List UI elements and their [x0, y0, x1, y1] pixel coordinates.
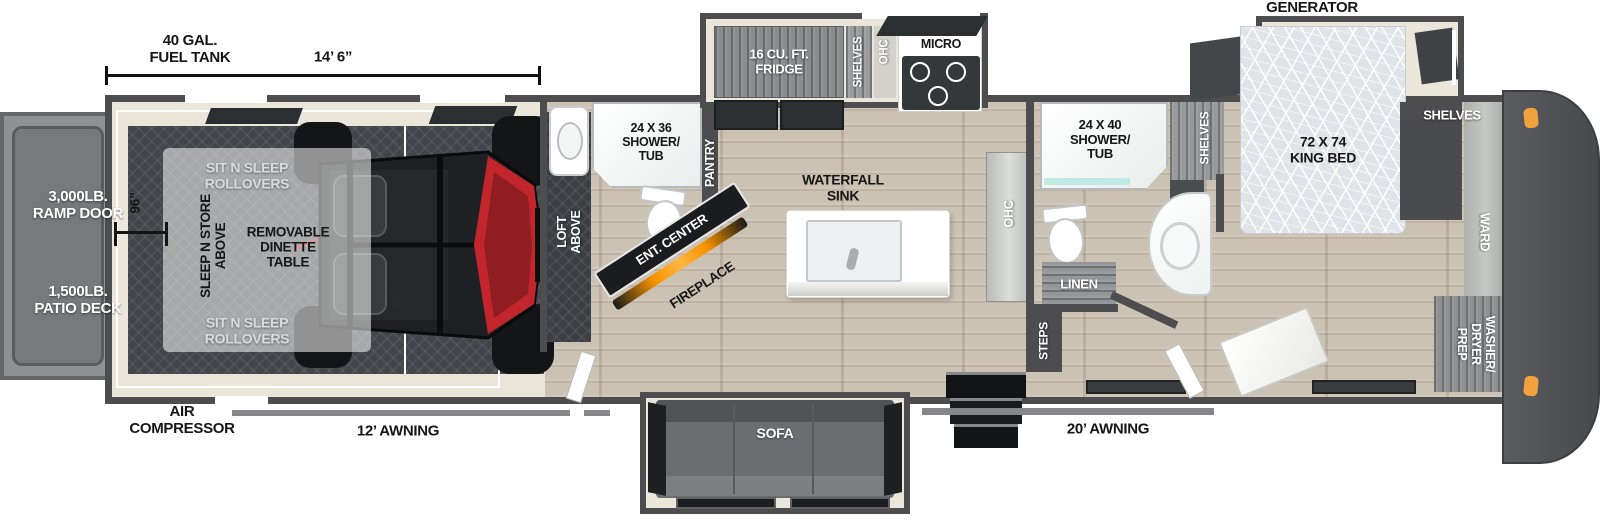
island-edge [788, 282, 948, 296]
microwave-label: MICRO [921, 37, 961, 51]
loft-above-label: LOFT ABOVE [555, 211, 583, 254]
sleep-n-store-label: SLEEP N STORE ABOVE [198, 194, 228, 298]
awning-12-bar [232, 410, 570, 416]
awning-12-label: 12’ AWNING [357, 424, 439, 441]
vanity-sink [1160, 222, 1200, 270]
sofa-mat-1 [676, 497, 776, 509]
sofa-armrest-left [648, 402, 666, 496]
entry-step-3 [954, 424, 1018, 448]
waterfall-sink-label: WATERFALL SINK [802, 172, 884, 203]
garage-width-label: 96” [127, 193, 142, 214]
king-bed-label: 72 X 74 KING BED [1290, 134, 1356, 165]
steps-label: STEPS [1037, 322, 1050, 360]
sofa-back [656, 400, 894, 422]
patio-deck-label: 1,500LB. PATIO DECK [34, 284, 121, 318]
ramp-door-panel [12, 126, 104, 366]
sit-n-sleep-bottom-label: SIT N SLEEP ROLLOVERS [205, 315, 289, 346]
half-bath-sink [557, 122, 583, 160]
awning-20-label: 20’ AWNING [1067, 422, 1149, 439]
sofa-cushion-line-1 [733, 404, 735, 494]
garage-door-dim-label: 86” [388, 286, 403, 307]
garage-width-tick-right [165, 222, 168, 246]
garage-window-bottom [215, 396, 268, 404]
kitchen-base-cabinet-2 [780, 100, 844, 130]
sit-n-sleep-top-label: SIT N SLEEP ROLLOVERS [205, 160, 289, 191]
dinette-table-label: REMOVABLE DINETTE TABLE [247, 224, 330, 269]
front-ward-cabinet [1464, 102, 1506, 312]
sofa-cushion-line-2 [812, 404, 814, 494]
shower-glass-line [1044, 178, 1130, 185]
floor-mat-1 [1086, 380, 1186, 394]
ward-label: WARD [1477, 213, 1492, 252]
awning-20-bar [922, 408, 1214, 415]
half-bath-shower-label: 24 X 36 SHOWER/ TUB [622, 121, 680, 163]
sofa-front-edge [662, 476, 888, 496]
awning-12-bar-end [584, 410, 610, 416]
kitchen-base-cabinet-1 [714, 100, 778, 130]
dimension-tick-left [105, 66, 108, 85]
sofa-label: SOFA [757, 426, 794, 442]
front-cap [1502, 90, 1600, 464]
range-hood [876, 16, 988, 36]
bedroom-shelves-left-label: SHELVES [1198, 111, 1211, 164]
marker-light-bottom [1523, 375, 1539, 396]
washer-dryer-label: WASHER/ DRYER PREP [1455, 316, 1497, 372]
entry-step-1 [946, 372, 1026, 398]
kitchen-ohc-label: OHC [879, 40, 892, 65]
rv-floorplan-diagram: 40 GAL. FUEL TANK 14’ 6” GENERATOR PREP … [0, 0, 1600, 520]
fuel-tank-label: 40 GAL. FUEL TANK [150, 33, 231, 67]
burner-icon-3 [928, 86, 948, 106]
king-bed [1240, 26, 1406, 234]
garage-dimension-line [106, 74, 540, 77]
marker-light-top [1523, 107, 1539, 128]
garage-rear-wall [540, 102, 547, 352]
bedroom-wardrobe [1400, 120, 1462, 220]
garage-window-top-2 [420, 95, 505, 103]
burner-icon-1 [910, 62, 930, 82]
ramp-door-label: 3,000LB. RAMP DOOR [33, 189, 123, 223]
garage-length-label: 14’ 6” [314, 50, 352, 67]
bedroom-tv-cabinet [1190, 36, 1240, 101]
pantry-label: PANTRY [703, 139, 717, 187]
garage-width-tick-left [114, 222, 117, 246]
floor-mat-2 [1312, 380, 1416, 394]
burner-icon-2 [946, 62, 966, 82]
ohc-counter-label: OHC [1002, 201, 1016, 228]
bedroom-shelves-right-label: SHELVES [1423, 109, 1481, 124]
garage-width-dim-line [116, 231, 168, 234]
air-compressor-label: AIR COMPRESSOR [129, 404, 234, 438]
bathroom-left-wall [1026, 102, 1034, 314]
main-shower-label: 24 X 40 SHOWER/ TUB [1070, 118, 1130, 162]
sofa-armrest-right [884, 402, 902, 496]
sofa-mat-2 [790, 497, 890, 509]
linen-label: LINEN [1060, 278, 1098, 293]
bed-slide-window-right [1452, 30, 1456, 85]
kitchen-shelves-label: SHELVES [853, 37, 866, 88]
garage-window-top-1 [185, 95, 267, 103]
dimension-tick-right [538, 66, 541, 85]
fridge-label: 16 CU. FT. FRIDGE [749, 47, 808, 76]
